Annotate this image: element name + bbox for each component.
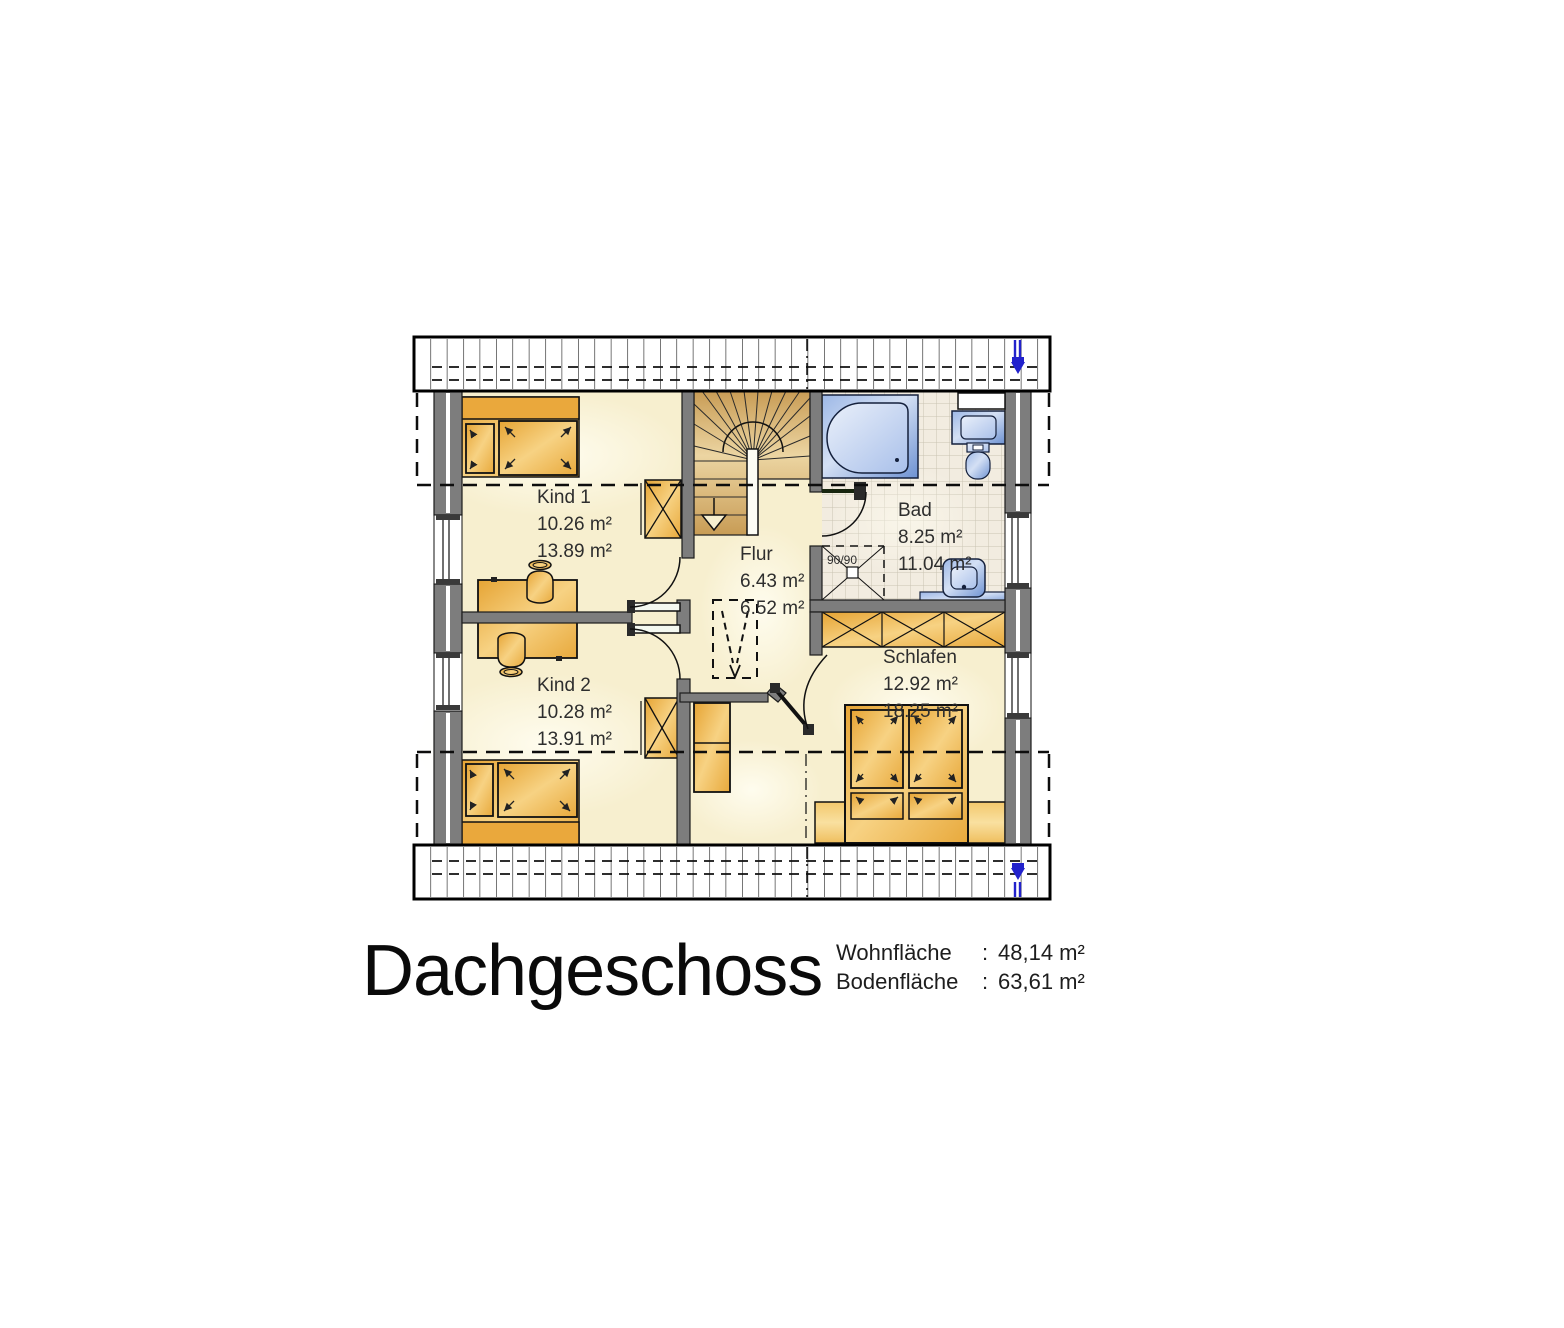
room-area-floor: 13.91 m² (537, 726, 612, 753)
wardrobe-schlafen (822, 612, 1005, 647)
roof-overhang-top (414, 337, 1050, 391)
stat-label: Wohnfläche (836, 938, 972, 967)
stat-colon: : (972, 938, 998, 967)
bed-kind1 (462, 397, 579, 477)
room-area-living: 12.92 m² (883, 671, 958, 698)
room-name: Schlafen (883, 644, 958, 671)
floorplan-drawing (0, 0, 1564, 1328)
room-area-floor: 11.04 m² (898, 551, 972, 578)
room-area-floor: 18.25 m² (883, 698, 958, 725)
stat-label: Bodenfläche (836, 967, 972, 996)
stat-row-wohnflaeche: Wohnfläche : 48,14 m² (836, 938, 1085, 967)
window-west-kind2 (434, 653, 462, 711)
window-west-kind1 (434, 515, 462, 584)
room-area-floor: 6.52 m² (740, 595, 804, 622)
room-area-living: 10.28 m² (537, 699, 612, 726)
wardrobe-kind2 (641, 698, 679, 758)
shower-size-label: 90/90 (827, 553, 857, 567)
shower-drain (847, 567, 858, 578)
room-name: Kind 2 (537, 672, 612, 699)
floor-title: Dachgeschoss (362, 930, 822, 1012)
room-area-living: 6.43 m² (740, 568, 804, 595)
window-east-bad (1005, 513, 1031, 588)
roof-overhang-bottom (414, 845, 1050, 899)
stat-value: 63,61 m² (998, 967, 1085, 996)
room-area-floor: 13.89 m² (537, 538, 612, 565)
sink-counter (952, 411, 1005, 444)
room-name: Bad (898, 497, 972, 524)
area-statistics: Wohnfläche : 48,14 m² Bodenfläche : 63,6… (836, 938, 1085, 996)
stat-value: 48,14 m² (998, 938, 1085, 967)
bad-north-niche (958, 393, 1005, 409)
wardrobe-kind1 (641, 480, 681, 538)
stat-colon: : (972, 967, 998, 996)
floorplan-page: Kind 1 10.26 m² 13.89 m² Kind 2 10.28 m²… (0, 0, 1564, 1328)
room-area-living: 8.25 m² (898, 524, 972, 551)
bathtub (822, 395, 918, 478)
room-label-kind1: Kind 1 10.26 m² 13.89 m² (537, 484, 612, 565)
stat-row-bodenflaeche: Bodenfläche : 63,61 m² (836, 967, 1085, 996)
cabinet-flur (694, 703, 730, 792)
room-name: Kind 1 (537, 484, 612, 511)
chair-kind2 (498, 633, 525, 677)
stair-spine-wall (747, 449, 758, 535)
toilet (966, 443, 990, 479)
room-name: Flur (740, 541, 804, 568)
window-east-schlafen (1005, 653, 1031, 718)
room-label-schlafen: Schlafen 12.92 m² 18.25 m² (883, 644, 958, 725)
bed-kind2 (462, 760, 579, 845)
room-label-bad: Bad 8.25 m² 11.04 m² (898, 497, 972, 578)
room-area-living: 10.26 m² (537, 511, 612, 538)
room-label-flur: Flur 6.43 m² 6.52 m² (740, 541, 804, 622)
room-label-kind2: Kind 2 10.28 m² 13.91 m² (537, 672, 612, 753)
chair-kind1 (527, 561, 553, 604)
